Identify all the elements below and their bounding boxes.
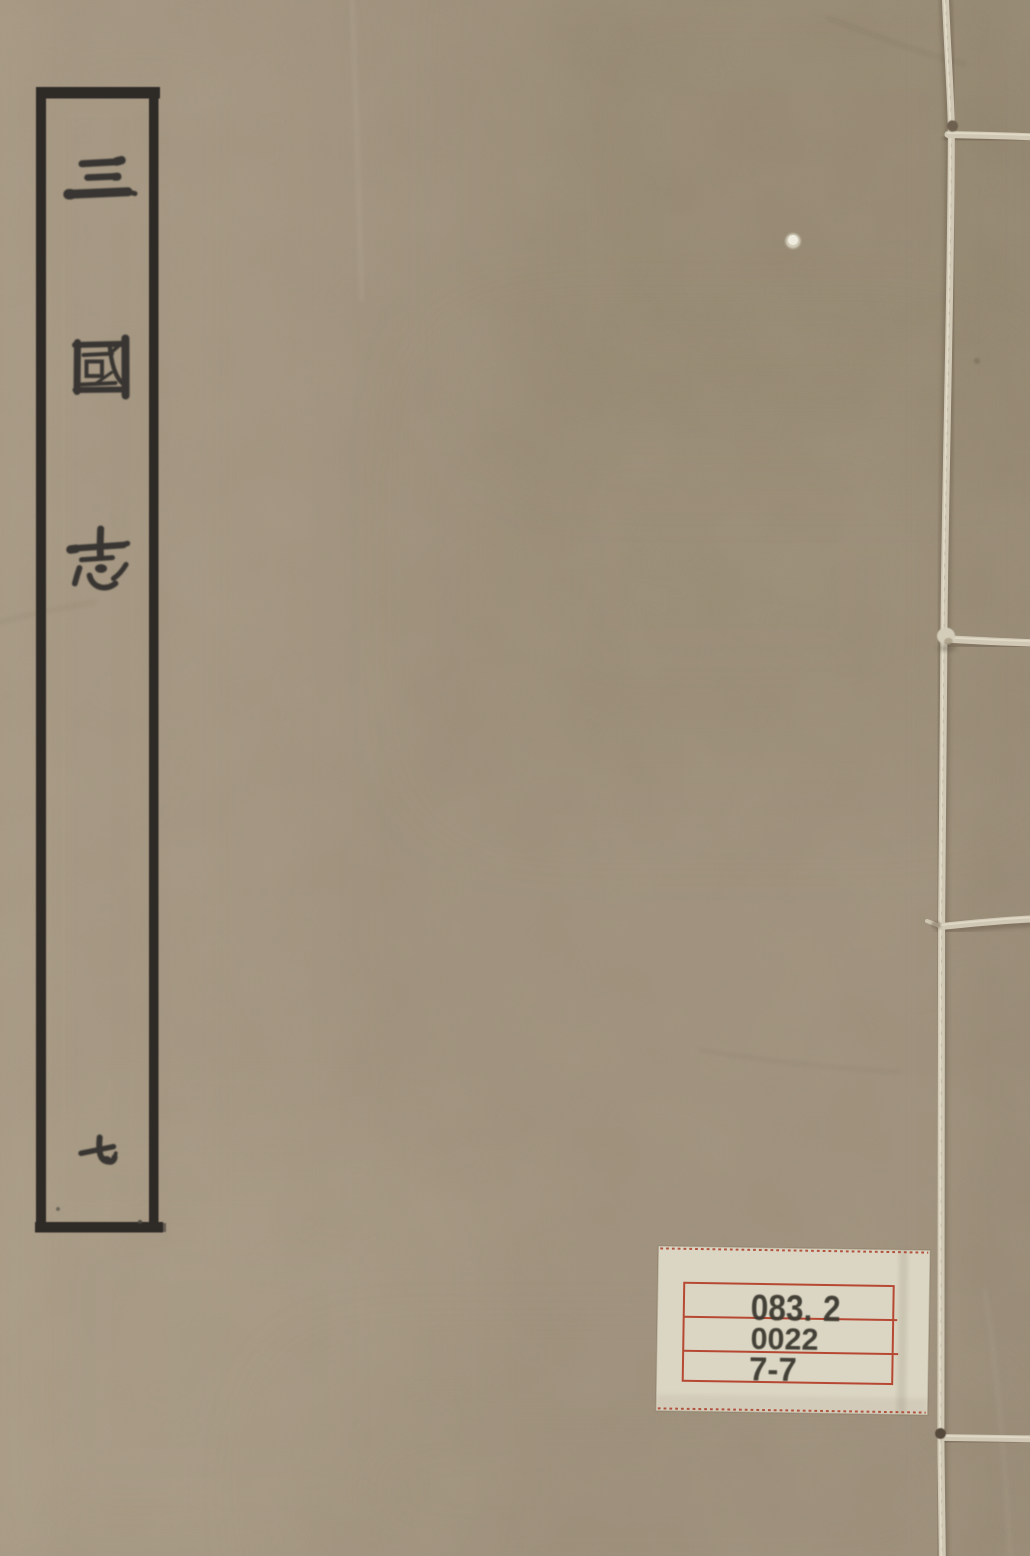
- svg-text:7-7: 7-7: [749, 1350, 797, 1388]
